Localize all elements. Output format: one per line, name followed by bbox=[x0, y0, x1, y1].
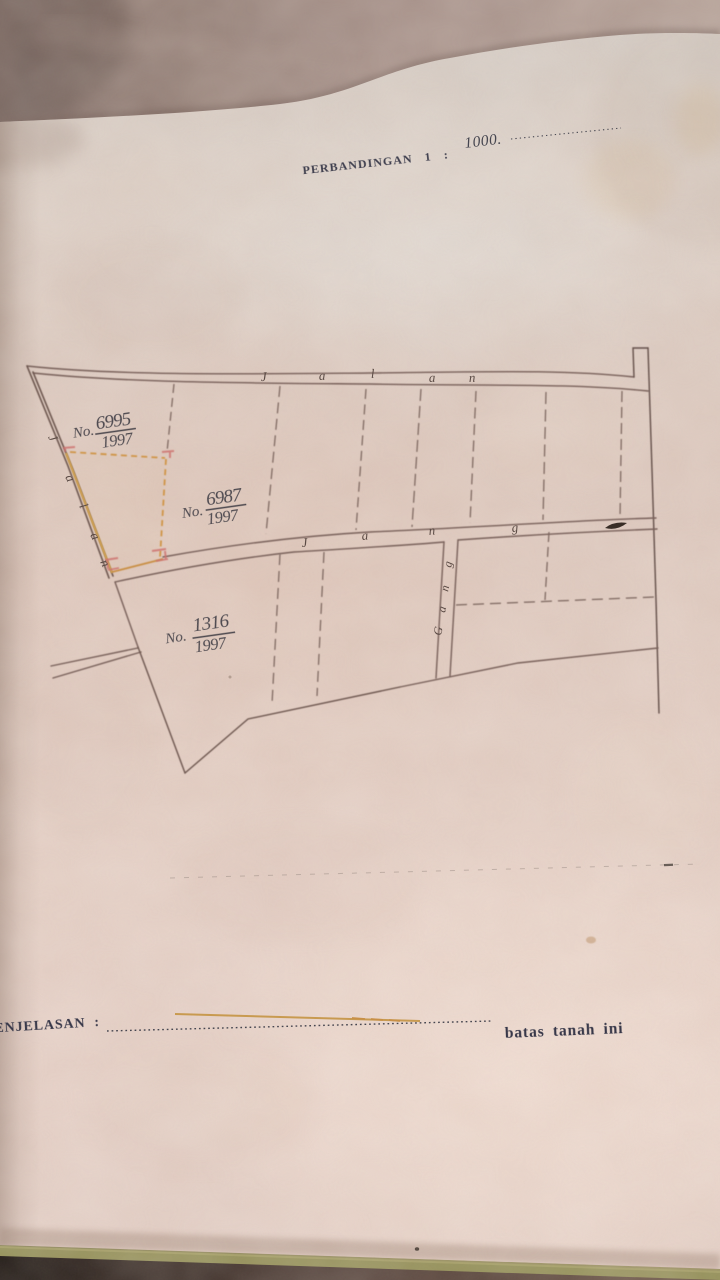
svg-text:No.: No. bbox=[71, 423, 95, 442]
svg-text:n: n bbox=[428, 522, 436, 538]
svg-text:No.: No. bbox=[180, 503, 204, 522]
svg-text:No.: No. bbox=[163, 629, 187, 648]
svg-text:a: a bbox=[429, 370, 437, 385]
svg-text:a: a bbox=[319, 368, 327, 383]
svg-text:n: n bbox=[469, 370, 476, 385]
